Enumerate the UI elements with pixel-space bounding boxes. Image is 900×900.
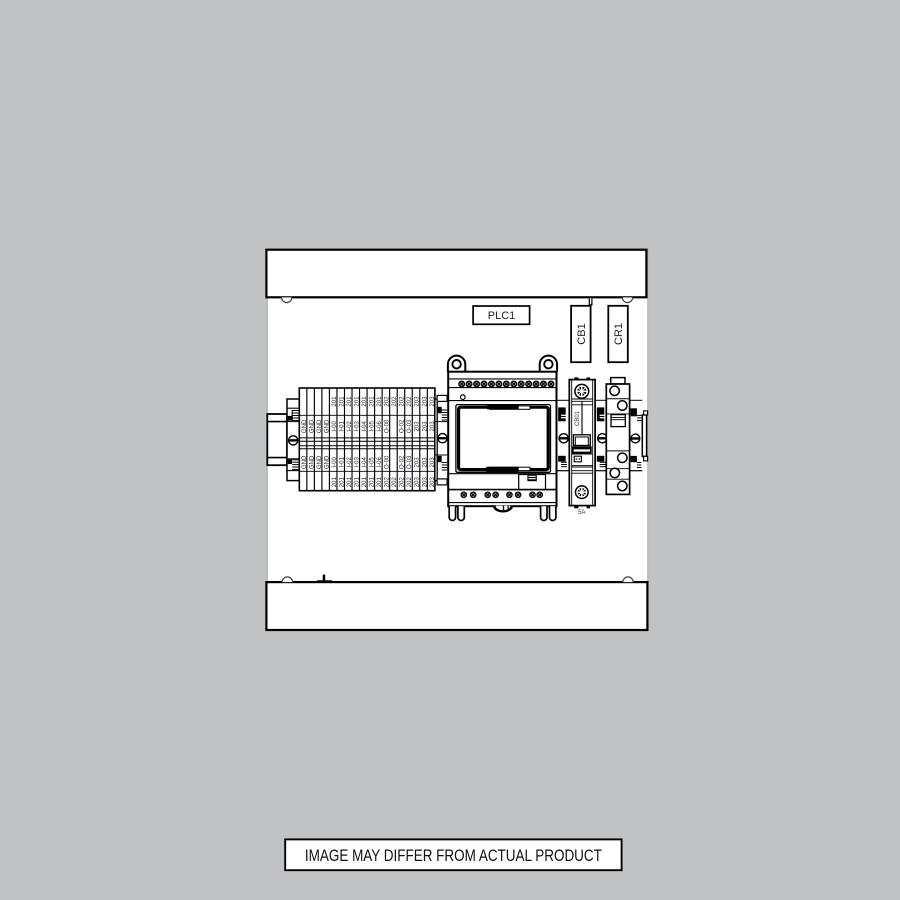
svg-text:GND: GND — [316, 455, 323, 469]
svg-text:202: 202 — [391, 396, 398, 407]
svg-text:201: 201 — [346, 477, 353, 488]
svg-text:203: 203 — [421, 396, 428, 407]
svg-text:201: 201 — [338, 396, 345, 407]
svg-text:O-00: O-00 — [384, 419, 391, 433]
svg-text:203: 203 — [421, 421, 428, 432]
svg-text:201: 201 — [361, 477, 368, 488]
svg-text:203: 203 — [414, 477, 421, 488]
svg-text:202: 202 — [384, 396, 391, 407]
svg-text:I-02: I-02 — [346, 421, 353, 432]
svg-text:I-04: I-04 — [361, 457, 368, 468]
svg-text:201: 201 — [369, 396, 376, 407]
svg-text:202: 202 — [399, 396, 406, 407]
svg-text:201: 201 — [376, 396, 383, 407]
svg-text:I-01: I-01 — [338, 457, 345, 468]
svg-text:I-06: I-06 — [376, 421, 383, 432]
svg-text:O-00: O-00 — [384, 455, 391, 469]
svg-text:GND: GND — [323, 419, 330, 433]
svg-text:GND: GND — [308, 419, 315, 433]
svg-text:201: 201 — [331, 396, 338, 407]
svg-text:I-05: I-05 — [369, 421, 376, 432]
svg-text:I-03: I-03 — [354, 457, 361, 468]
svg-text:203: 203 — [414, 421, 421, 432]
svg-text:201: 201 — [354, 477, 361, 488]
svg-text:203: 203 — [414, 396, 421, 407]
svg-text:GND: GND — [301, 455, 308, 469]
svg-text:IMAGE MAY DIFFER FROM ACTUAL P: IMAGE MAY DIFFER FROM ACTUAL PRODUCT — [305, 847, 602, 865]
svg-text:O-03: O-03 — [406, 419, 413, 433]
svg-text:201: 201 — [331, 477, 338, 488]
svg-text:O-03: O-03 — [406, 455, 413, 469]
svg-text:O-02: O-02 — [399, 455, 406, 469]
svg-text:O-02: O-02 — [399, 419, 406, 433]
svg-text:202: 202 — [406, 396, 413, 407]
svg-text:201: 201 — [354, 396, 361, 407]
svg-text:5A: 5A — [578, 510, 585, 516]
svg-text:202: 202 — [384, 477, 391, 488]
svg-text:I-04: I-04 — [361, 421, 368, 432]
svg-text:202: 202 — [391, 477, 398, 488]
svg-text:I-03: I-03 — [354, 421, 361, 432]
svg-text:201: 201 — [369, 477, 376, 488]
svg-text:GND: GND — [323, 455, 330, 469]
svg-text:CB01: CB01 — [575, 410, 581, 426]
svg-text:GND: GND — [316, 419, 323, 433]
svg-text:201: 201 — [376, 477, 383, 488]
svg-text:GND: GND — [308, 455, 315, 469]
svg-text:201: 201 — [346, 396, 353, 407]
svg-text:GND: GND — [301, 419, 308, 433]
svg-text:202: 202 — [399, 477, 406, 488]
svg-text:203: 203 — [414, 457, 421, 468]
svg-text:201: 201 — [361, 396, 368, 407]
svg-text:CR1: CR1 — [613, 323, 625, 345]
svg-text:I-05: I-05 — [369, 457, 376, 468]
svg-text:PLC1: PLC1 — [488, 310, 516, 322]
svg-text:203: 203 — [421, 457, 428, 468]
svg-text:I-02: I-02 — [346, 457, 353, 468]
svg-text:I-01: I-01 — [338, 421, 345, 432]
svg-text:203: 203 — [421, 477, 428, 488]
svg-text:201: 201 — [338, 477, 345, 488]
svg-text:I-00: I-00 — [331, 457, 338, 468]
svg-text:202: 202 — [406, 477, 413, 488]
svg-text:I-00: I-00 — [331, 421, 338, 432]
svg-text:CB1: CB1 — [576, 323, 588, 344]
svg-text:I-06: I-06 — [376, 457, 383, 468]
